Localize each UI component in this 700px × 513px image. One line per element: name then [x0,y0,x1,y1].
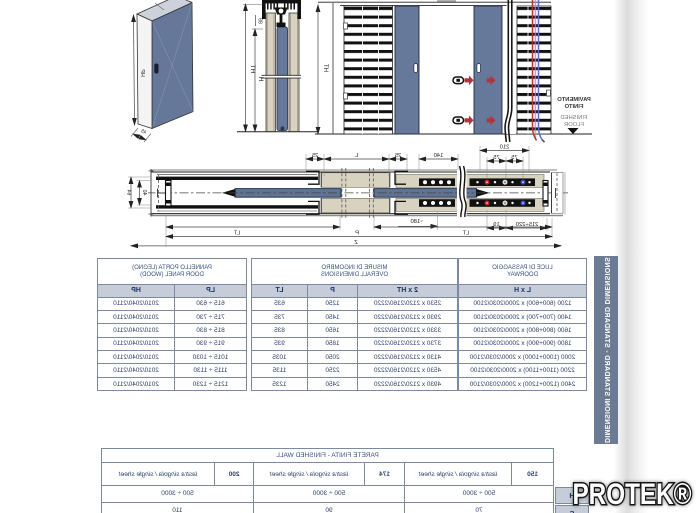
svg-text:FLOOR: FLOOR [564,122,584,128]
svg-text:40: 40 [141,190,147,196]
svg-text:Z: Z [354,240,358,246]
svg-text:HP: HP [139,69,145,77]
svg-text:89: 89 [257,18,263,24]
svg-text:~180: ~180 [410,219,423,225]
svg-text:25: 25 [395,153,401,159]
svg-text:PAVIMENTO: PAVIMENTO [557,97,591,103]
svg-text:P: P [355,231,359,237]
svg-text:210: 210 [500,145,510,151]
svg-text:LT: LT [233,231,240,237]
svg-text:FINISHED: FINISHED [560,115,587,121]
svg-text:75: 75 [493,155,499,161]
svg-text:LT: LT [462,231,469,237]
svg-text:64: 64 [126,190,132,196]
svg-text:45: 45 [139,128,147,136]
svg-text:25: 25 [312,153,318,159]
svg-text:H: H [257,76,264,81]
svg-text:140: 140 [434,153,444,159]
svg-text:L: L [354,153,358,159]
svg-text:FINITO: FINITO [564,104,583,110]
svg-text:75: 75 [511,155,517,161]
svg-text:PROTEK®: PROTEK® [573,478,692,511]
svg-text:HT: HT [322,64,328,72]
